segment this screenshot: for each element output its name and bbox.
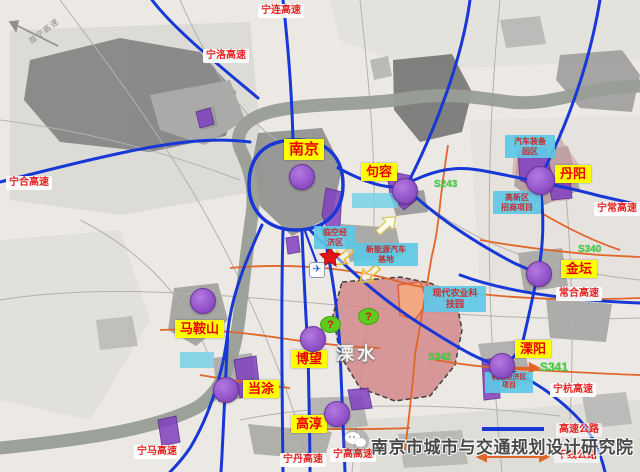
- city-marker-dangtu: [213, 377, 239, 403]
- project-box-auto-equipment-park: 汽车装备 园区: [505, 135, 555, 158]
- highway-label-changhe: 常合高速: [556, 287, 602, 301]
- question-mark-icon: ?: [320, 316, 341, 333]
- highway-label-ningchang: 宁常高速: [594, 202, 640, 216]
- city-marker-gaochun: [324, 401, 350, 427]
- city-label-maanshan: 马鞍山: [175, 320, 224, 338]
- highway-label-ningma: 宁马高速: [134, 445, 180, 459]
- city-label-nanjing: 南京: [284, 139, 324, 160]
- project-text: 济区: [317, 238, 353, 248]
- wechat-bubbles-icon: [343, 428, 369, 454]
- watermark-text: 南京市城市与交通规划设计研究院: [371, 433, 634, 458]
- bubble-eye: [353, 436, 355, 438]
- city-marker-jintan: [526, 261, 552, 287]
- city-label-bowang: 博望: [291, 350, 327, 368]
- highway-label-ningdan: 宁丹高速: [280, 453, 326, 467]
- route-label-s340: S340: [578, 244, 601, 255]
- city-label-jurong: 句容: [361, 163, 397, 181]
- route-label-s341: S341: [540, 360, 568, 374]
- city-marker-maanshan: [190, 288, 216, 314]
- city-label-liyang: 溧阳: [515, 340, 551, 358]
- route-label-s342: S342: [428, 352, 451, 363]
- route-label-s243: S243: [434, 179, 457, 190]
- project-text: 新能源汽车: [357, 245, 415, 255]
- project-box-airport-economic-zone: 临空经 济区: [314, 226, 356, 249]
- city-label-jintan: 金坛: [561, 260, 597, 278]
- project-text: 汽车装备: [508, 137, 552, 147]
- project-box-modern-agriculture-park: 现代农业科 技园: [424, 286, 486, 312]
- city-marker-liyang: [489, 353, 515, 379]
- city-label-gaochun: 高淳: [291, 415, 327, 433]
- project-text: 高新区: [496, 193, 538, 203]
- project-text: 技园: [427, 299, 483, 310]
- bubble-eye: [349, 436, 351, 438]
- highway-label-ninglian: 宁连高速: [258, 4, 304, 18]
- planning-map: 宁连高速 宁洛高速 宁合高速 宁常高速 常合高速 宁杭高速 宁马高速 宁丹高速 …: [0, 0, 640, 472]
- airport-icon: ✈: [309, 262, 325, 278]
- project-box-new-energy-vehicle-base: 新能源汽车 基地: [354, 243, 418, 266]
- question-mark-icon: ?: [358, 308, 379, 325]
- highway-label-ningluo: 宁洛高速: [203, 49, 249, 63]
- project-text: 园区: [508, 147, 552, 157]
- project-text: 项目: [488, 382, 530, 390]
- city-marker-nanjing: [289, 164, 315, 190]
- bubble-small: [355, 438, 366, 447]
- city-label-dangtu: 当涂: [243, 380, 279, 398]
- district-name-lishui: 溧水: [336, 340, 378, 366]
- project-text: 临空经: [317, 228, 353, 238]
- project-text: 基地: [357, 255, 415, 265]
- project-text: 招商项目: [496, 203, 538, 213]
- city-marker-jurong: [392, 178, 418, 204]
- highway-label-ninghang: 宁杭高速: [550, 383, 596, 397]
- city-marker-danyang: [526, 166, 555, 195]
- project-text: 现代农业科: [427, 288, 483, 299]
- highway-label-ninghe: 宁合高速: [6, 176, 52, 190]
- city-label-danyang: 丹阳: [555, 165, 591, 183]
- project-box-hightech-zone-project: 高新区 招商项目: [493, 191, 541, 214]
